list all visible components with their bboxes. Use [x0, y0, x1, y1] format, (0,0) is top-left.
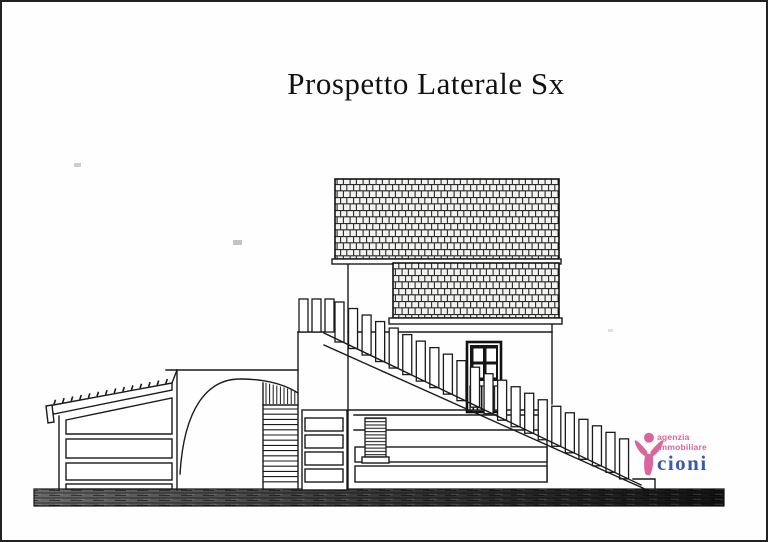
- logo-word-agenzia: agenzia: [657, 432, 708, 442]
- annex-board: [66, 439, 172, 458]
- vent-grille-sill: [362, 457, 389, 463]
- lower-roof-eave: [389, 318, 562, 324]
- porch-corner: [172, 370, 177, 383]
- panel-door: [302, 410, 347, 490]
- ground-hatch: [34, 489, 724, 506]
- roller-shutter: [263, 332, 298, 489]
- siding-band: [355, 466, 547, 482]
- door-pane: [474, 349, 484, 362]
- door-pane: [487, 349, 497, 362]
- lower-roof-tiles: [393, 263, 559, 318]
- upper-roof-tiles: [335, 179, 559, 259]
- scanned-page: Prospetto Laterale Sx: [0, 0, 768, 542]
- roofs: [332, 179, 562, 324]
- agency-logo: agenzia immobiliare cioni: [628, 430, 758, 482]
- vent-grille: [365, 418, 386, 457]
- annex-board: [66, 463, 172, 480]
- annex-board: [66, 484, 172, 489]
- annex-left: [46, 379, 172, 490]
- annex-roof-end-cap: [46, 405, 54, 423]
- logo-word-cioni: cioni: [657, 453, 708, 474]
